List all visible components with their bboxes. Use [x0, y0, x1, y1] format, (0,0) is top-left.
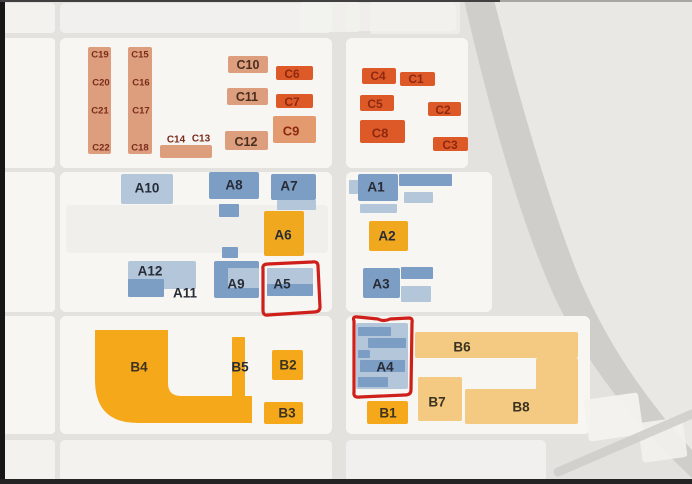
label-c8: C8	[372, 126, 389, 141]
parcel-a4-slab3	[358, 350, 370, 358]
parcel-a4-slab5	[358, 377, 388, 387]
city-block-left-lower	[3, 316, 55, 434]
label-c1: C1	[408, 72, 424, 86]
label-c3: C3	[442, 138, 458, 152]
parcel-a3-bar1	[401, 267, 433, 279]
label-c10: C10	[237, 58, 260, 72]
label-c18: C18	[131, 143, 148, 154]
label-a5: A5	[273, 277, 291, 292]
label-c11: C11	[236, 90, 258, 104]
parcel-a4-slab1	[358, 327, 391, 336]
label-b3: B3	[278, 406, 296, 421]
label-c5: C5	[367, 97, 383, 111]
label-c19: C19	[91, 50, 108, 61]
label-c12: C12	[235, 135, 258, 149]
label-b8: B8	[512, 400, 530, 415]
city-block-bottom-1	[60, 440, 332, 482]
parcel-strip-c14-c13	[160, 145, 212, 158]
label-c7: C7	[284, 95, 300, 109]
city-block-top-strip-1	[60, 3, 332, 33]
parcel-a3-bar2	[401, 286, 431, 302]
city-block-bottom-2	[346, 440, 546, 482]
label-b1: B1	[379, 406, 397, 421]
label-a10: A10	[135, 181, 160, 196]
label-b6: B6	[453, 340, 471, 355]
label-c22: C22	[92, 143, 109, 154]
label-c15: C15	[131, 50, 149, 61]
label-a1: A1	[367, 180, 385, 195]
label-a3: A3	[372, 277, 390, 292]
frame-bottom-edge	[0, 479, 692, 484]
label-b5: B5	[231, 360, 249, 375]
parcel-a7-annex	[277, 200, 316, 210]
parcel-a4-slab2	[368, 338, 406, 348]
label-c17: C17	[132, 106, 149, 117]
label-c4: C4	[370, 69, 386, 83]
label-b4: B4	[130, 360, 148, 375]
label-c2: C2	[435, 103, 451, 117]
label-a2: A2	[378, 229, 395, 244]
label-c21: C21	[91, 106, 109, 117]
label-a6: A6	[274, 228, 292, 243]
label-c14: C14	[167, 135, 186, 146]
label-a4: A4	[376, 360, 394, 375]
parcel-a12-slab	[128, 279, 164, 297]
parcel-a9-annex	[222, 247, 238, 258]
frame-top-edge-light	[500, 0, 692, 2]
parcel-a1-bar2	[404, 192, 433, 203]
label-c13: C13	[192, 134, 211, 145]
frame-left-edge	[0, 0, 5, 484]
parcel-strip-c19-c22	[88, 47, 111, 154]
parcel-a1-bar3	[360, 204, 397, 213]
label-c6: C6	[284, 67, 300, 81]
label-c9: C9	[283, 124, 300, 139]
parcel-b6-east-wing	[536, 358, 578, 424]
frame-top-edge	[0, 0, 500, 2]
site-plan-map: C19C20C21C22C15C16C17C18C14C13C10C11C12C…	[0, 0, 692, 484]
label-c16: C16	[132, 78, 149, 89]
marina-structure-1	[300, 2, 360, 32]
site-plan-canvas: C19C20C21C22C15C16C17C18C14C13C10C11C12C…	[0, 0, 692, 484]
city-block-left-bottom	[3, 440, 55, 482]
city-block-left-upper	[3, 38, 55, 168]
label-b2: B2	[279, 358, 296, 373]
label-a11: A11	[173, 286, 198, 301]
marina-structure-2	[370, 0, 460, 34]
label-a8: A8	[225, 178, 243, 193]
label-c20: C20	[92, 78, 109, 89]
city-block-top-left-margin	[3, 3, 55, 33]
label-a9: A9	[227, 277, 244, 292]
parcel-a8-annex	[219, 204, 239, 217]
label-a12: A12	[138, 264, 163, 279]
parcel-a1-bar1	[399, 174, 452, 186]
city-block-left-mid	[3, 172, 55, 312]
label-a7: A7	[280, 179, 297, 194]
parcel-strip-c15-c18	[128, 47, 152, 154]
parcel-b6	[415, 332, 578, 358]
parcel-a1-annex	[349, 180, 358, 194]
label-b7: B7	[428, 395, 445, 410]
